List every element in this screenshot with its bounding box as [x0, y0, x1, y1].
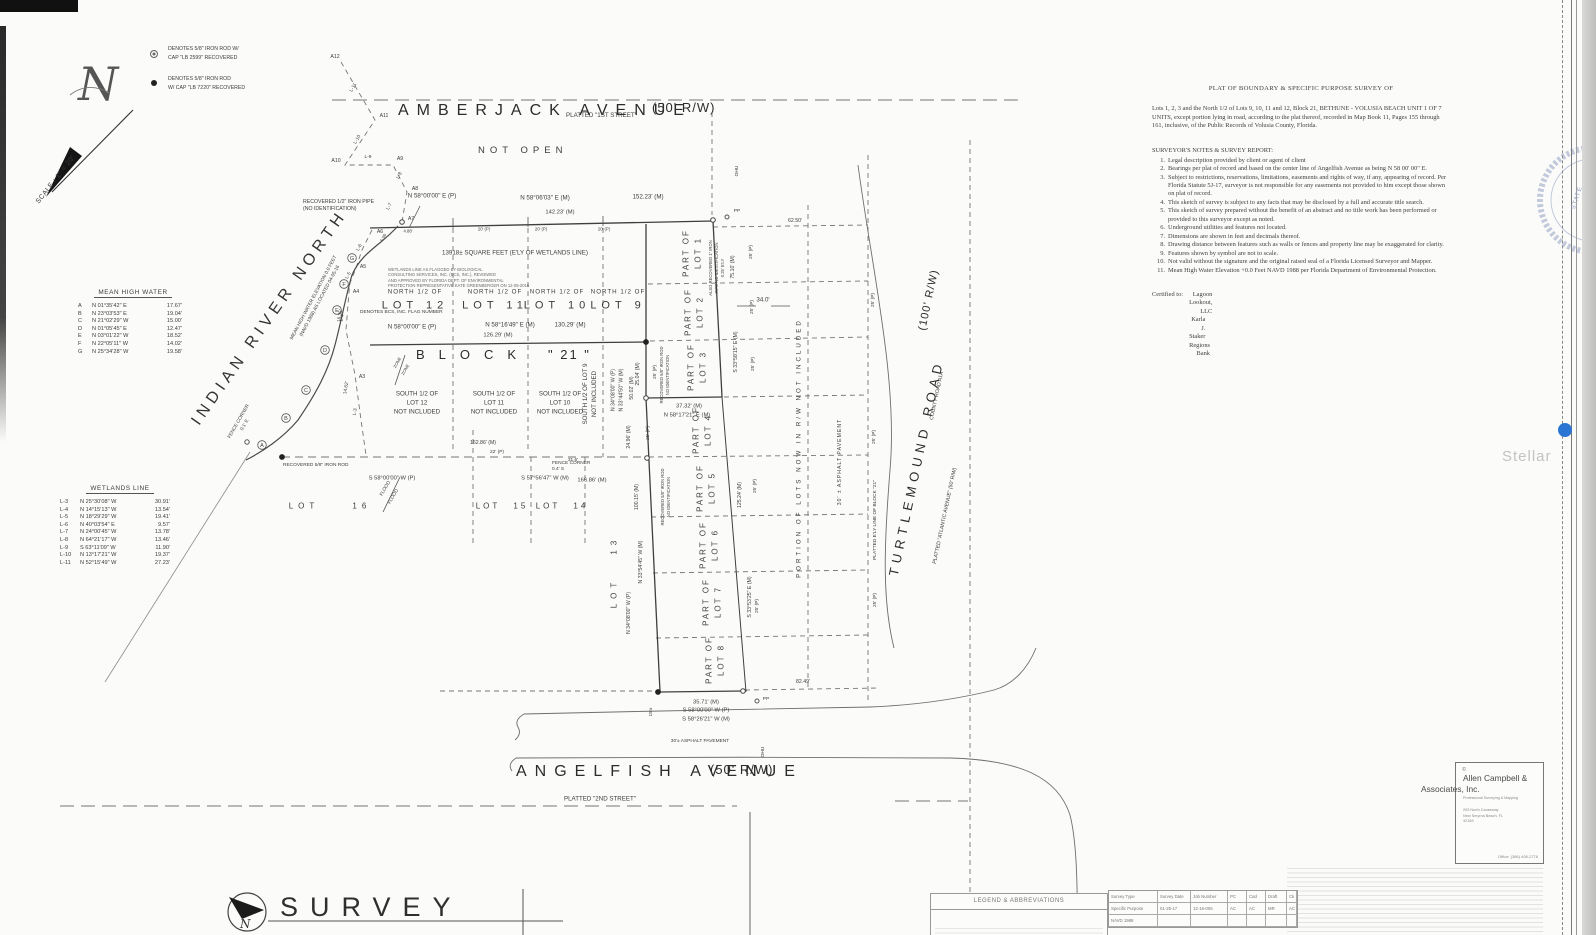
part-of-lot-2: PART OFLOT 2: [682, 288, 705, 336]
plat-title: PLAT OF BOUNDARY & SPECIFIC PURPOSE SURV…: [1152, 84, 1450, 93]
west-bearing-stack: N 34°08'00" W (P)N 33°44'50" W (M): [610, 369, 625, 412]
shore-point-b: B: [284, 416, 288, 422]
part-of-lot-5: PART OFLOT 5: [694, 464, 717, 512]
lot-13-label: LOT 13: [609, 536, 618, 609]
survey-info-table: Survey TypeSurvey DateJob NumberPCCadDra…: [1108, 890, 1298, 928]
part-of-lot-8: PART OFLOT 8: [703, 636, 726, 684]
dim-488: 4.88': [404, 230, 413, 235]
not-open-label: NOT OPEN: [478, 146, 567, 157]
top-bearing-plat: N 58°00'00" E (P): [408, 192, 457, 199]
platted-ely-line-label: PLATTED E'LY LINE OF BLOCK "21": [873, 480, 879, 560]
lot-10-label: LOT 10: [524, 300, 591, 313]
bot-distance-162: 162.86' (M): [470, 441, 496, 447]
mean-high-water-table: MEAN HIGH WATER AN 01°35'42" E17.67'BN 2…: [78, 281, 188, 356]
east2-distance: 125.24' (M): [738, 482, 744, 508]
dim-10015: 100.15' (M): [635, 484, 641, 510]
amberjack-platted: PLATTED "1ST STREET": [566, 112, 637, 119]
asphalt-pavement-horizontal: 30'± ASPHALT PAVEMENT: [671, 739, 729, 745]
top-distance-142: 142.23' (M): [545, 210, 574, 217]
ohu-top: OHU: [735, 166, 741, 177]
east1-distance: 75.10' (M): [731, 255, 737, 278]
lot-11-label: LOT 11: [462, 300, 528, 313]
square-feet-note: 13918± SQUARE FEET (E'LY OF WETLANDS LIN…: [442, 249, 588, 256]
lot3-distance: 37.32' (M): [676, 404, 702, 411]
tick-marks: [268, 206, 790, 935]
dim-6250: 62.50': [788, 219, 802, 225]
fence-corner-2: FENCE CORNER0.4' S: [552, 461, 590, 473]
mid-bearing-measured: N 58°16'49" E (M): [485, 321, 535, 328]
point-a9: A9: [397, 157, 403, 163]
lot3-bearing: N 58°17'21" E (M): [664, 413, 710, 420]
pp-bottom: PP: [763, 697, 769, 703]
legend-item2-line1: DENOTES 5/8" IRON ROD: [168, 77, 231, 83]
legend-item1-line2: CAP "LB 2599" RECOVERED: [168, 56, 237, 62]
recovered-rod-ne: RECOVERED 5/8" IRON RODNO IDENTIFICATION: [659, 346, 671, 403]
firm-name-1: Allen Campbell &: [1463, 773, 1527, 783]
legend-table-title: LEGEND & ABBREVIATIONS: [931, 894, 1107, 910]
scan-artifact-top: [0, 0, 78, 12]
dim-25p-r4: 25' (P): [753, 479, 759, 493]
point-a4: A4: [353, 290, 359, 296]
shore-point-f: F: [342, 282, 346, 288]
dim-25p-b: 25' (P): [646, 426, 652, 440]
portion-of-lots-label: PORTION OF LOTS NOW IN R/W NOT INCLUDED: [795, 318, 802, 578]
point-a7: A7: [408, 217, 414, 223]
north-half-lot12-label: NORTH 1/2 OF: [388, 288, 443, 295]
dim-22p: 22' (P): [490, 450, 504, 456]
shore-point-c: C: [304, 388, 308, 394]
fine-print-block: [1287, 868, 1543, 934]
angelfish-platted: PLATTED "2ND STREET": [564, 795, 636, 802]
east1-bearing: S 33°58'15" E (M): [734, 331, 740, 372]
firm-addr-2: New Smyrna Beach, FL: [1463, 814, 1503, 818]
shore-point-g: G: [350, 256, 354, 262]
wetlands-flag-note: WETLANDS LINE AS FLAGGED BY BIOLOGICALCO…: [388, 267, 529, 289]
lot-14-label: LOT 14: [536, 501, 589, 510]
ohu-bottom: OHU: [761, 747, 767, 758]
point-a12: A12: [330, 55, 339, 61]
shore-point-d: D: [323, 348, 327, 354]
dim-25p-r5: 25' (P): [755, 599, 761, 613]
part-of-lot-7: PART OFLOT 7: [700, 578, 723, 626]
angelfish-rw: (50' R/W): [710, 763, 773, 778]
svg-text:N: N: [77, 57, 120, 111]
lot-12-label: LOT 12: [382, 300, 449, 313]
dim-2504: 25.04' (M): [636, 362, 642, 385]
part-of-lot-1: PART OFLOT 1: [680, 229, 703, 277]
asphalt-pavement-vertical: 30' ± ASPHALT PAVEMENT: [838, 419, 844, 506]
mid-distance-126: 126.29' (M): [483, 333, 512, 340]
border-solid-right2: [1576, 0, 1577, 935]
west2-plat: N 34°08'00" W (P): [627, 592, 633, 634]
north-half-lot11-label: NORTH 1/2 OF: [468, 288, 523, 295]
dim-25p-r8: 25' (P): [873, 593, 879, 607]
point-a10: A10: [331, 159, 340, 165]
top-distance-152: 152.23' (M): [632, 193, 663, 200]
certified-label: Certified to:: [1152, 291, 1183, 359]
svg-text:N: N: [239, 917, 251, 931]
firm-addr-3: 32169: [1463, 819, 1474, 823]
compass-icon: N: [228, 893, 266, 931]
firm-stamp-box: © Allen Campbell &Associates, Inc. Profe…: [1455, 762, 1544, 864]
shore-point-circles: G F E D C B A: [258, 254, 357, 450]
tick-20p-1: 20' (P): [478, 228, 490, 233]
part-of-lot-3: PART OFLOT 3: [685, 343, 708, 391]
angelfish-bearing-stack: 35.71' (M)S 58°00'00" W (P)S 58°26'21" W…: [682, 698, 730, 723]
survey-plat-sheet: G F E D C B A N N: [0, 0, 1596, 935]
block-word: BLOCK: [416, 348, 530, 363]
north-half-lot10-label: NORTH 1/2 OF: [530, 288, 585, 295]
also-recovered-note: ALSO RECOVERED 1" IRONPIPE NO IDENTIFICA…: [708, 240, 726, 295]
lot-9-label: LOT 9: [590, 300, 645, 313]
mhw-table-rows: AN 01°35'42" E17.67'BN 23°03'53" E19.04'…: [78, 303, 188, 356]
firm-phone: Office: (386) 408-2778: [1498, 854, 1538, 859]
point-a5: A5: [360, 265, 366, 271]
firm-addr-1: 203 North Causeway: [1463, 808, 1498, 812]
amberjack-rw: (50' R/W): [652, 101, 715, 116]
page-edge-shading: [1582, 0, 1596, 935]
recovered-rod-mid: RECOVERED 5/8" IRON RODNO IDENTIFICATION: [660, 468, 672, 525]
segment-l9: L-9: [365, 155, 372, 161]
legend-abbreviations-table: LEGEND & ABBREVIATIONS: [930, 893, 1108, 935]
wetlands-line-table: WETLANDS LINE L-3N 25°30'08" W30.91'L-4N…: [60, 477, 180, 567]
shore-point-a: A: [260, 443, 264, 449]
border-solid-right: [1571, 0, 1572, 935]
legend-symbol-filled-rod-icon: [151, 80, 157, 86]
tick-20p-2: 20' (P): [535, 228, 547, 233]
notes-list: 1.Legal description provided by client o…: [1152, 157, 1450, 275]
bot-bearing-measured: S 57°56'47" W (M): [521, 476, 569, 483]
recovered-pipe-note: RECOVERED 1/2" IRON PIPE(NO IDENTIFICATI…: [303, 199, 374, 213]
legend-item2-line2: W/ CAP "LB 7220" RECOVERED: [168, 86, 245, 92]
dim-15: 15'±: [649, 708, 655, 717]
bot-bearing-plat: S 58°00'00" W (P): [369, 476, 416, 483]
south-half-lot10: SOUTH 1/2 OFLOT 10NOT INCLUDED: [537, 391, 583, 418]
blue-dot-marker: [1558, 423, 1572, 437]
legend-item1-line1: DENOTES 5/8" IRON ROD W/: [168, 47, 239, 53]
dim-25p-r2: 25' (P): [750, 300, 756, 314]
mid-bearing-plat: N 58°00'00" E (P): [388, 323, 437, 330]
mid-distance-130: 130.29' (M): [554, 321, 585, 328]
scan-artifact-left: [0, 26, 6, 442]
legal-description: Lots 1, 2, 3 and the North 1/2 of Lots 9…: [1152, 105, 1450, 131]
bot-distance-166: 166.86' (M): [577, 478, 606, 485]
mhw-table-title: MEAN HIGH WATER: [94, 289, 171, 298]
certified-to-block: Certified to: Lagoon Lookout, LLCKarla J…: [1152, 291, 1450, 359]
pavement-edges: [510, 165, 1077, 935]
east2-bearing: S 33°53'25" E (M): [748, 576, 754, 617]
firm-name-2: Associates, Inc.: [1421, 784, 1480, 794]
firm-tagline: Professional Surveying & Mapping: [1463, 796, 1543, 800]
mean-high-water-line: [246, 226, 398, 460]
west2-measured: N 33°54'45" W (M): [639, 541, 645, 584]
dim-25p-r1: 25' (P): [749, 245, 755, 259]
certified-names: Lagoon Lookout, LLCKarla J. StakerRegion…: [1189, 291, 1212, 359]
dim-25p-r7: 25' (P): [872, 430, 878, 444]
recovered-rod-bottom: RECOVERED 5/8" IRON ROD: [283, 463, 348, 469]
south-half-lot9: SOUTH 1/2 OF LOT 9NOT INCLUDED: [582, 363, 600, 424]
dim-2496: 24.96' (M): [627, 425, 633, 448]
survey-info-rows: Survey TypeSurvey DateJob NumberPCCadDra…: [1109, 891, 1297, 927]
dim-340: 34.0': [756, 296, 769, 303]
notes-heading: SURVEYOR'S NOTES & SURVEY REPORT:: [1152, 147, 1450, 156]
stellar-watermark: Stellar: [1502, 448, 1552, 465]
block-number: " 21 ": [548, 348, 591, 363]
wetlands-table-rows: L-3N 25°30'08" W30.91'L-4N 14°15'13" W13…: [60, 499, 180, 567]
top-bearing-measured: N 58°06'03" E (M): [520, 194, 570, 201]
point-a11: A11: [380, 114, 389, 120]
point-a3: A3: [359, 375, 365, 381]
segment-l3: L-3: [353, 408, 360, 416]
amberjack-avenue-name: AMBERJACK AVENUE: [398, 102, 692, 120]
dim-25p-r3: 25' (P): [751, 357, 757, 371]
lot-16-label: LOT 16: [289, 501, 372, 510]
tick-20p-3: 20' (P): [598, 228, 610, 233]
part-of-lot-6: PART OFLOT 6: [697, 521, 720, 569]
legend-symbol-open-rod-icon: [150, 50, 158, 58]
dim-8249: 82.49': [796, 680, 810, 686]
dim-25p-r6: 25' (P): [871, 293, 877, 307]
south-half-lot11: SOUTH 1/2 OFLOT 11NOT INCLUDED: [471, 391, 517, 418]
border-dashed-right: [1562, 0, 1563, 935]
surveyor-notes-panel: PLAT OF BOUNDARY & SPECIFIC PURPOSE SURV…: [1152, 84, 1450, 359]
copyright-icon: ©: [1462, 767, 1466, 773]
pp-top: PP: [734, 209, 740, 215]
survey-logo-label: SURVEY: [280, 892, 463, 923]
north-half-lot9-label: NORTH 1/2 OF: [591, 288, 646, 295]
wetlands-table-title: WETLANDS LINE: [86, 485, 153, 494]
lot-15-label: LOT 15: [476, 501, 529, 510]
south-half-lot12: SOUTH 1/2 OFLOT 12NOT INCLUDED: [394, 391, 440, 418]
